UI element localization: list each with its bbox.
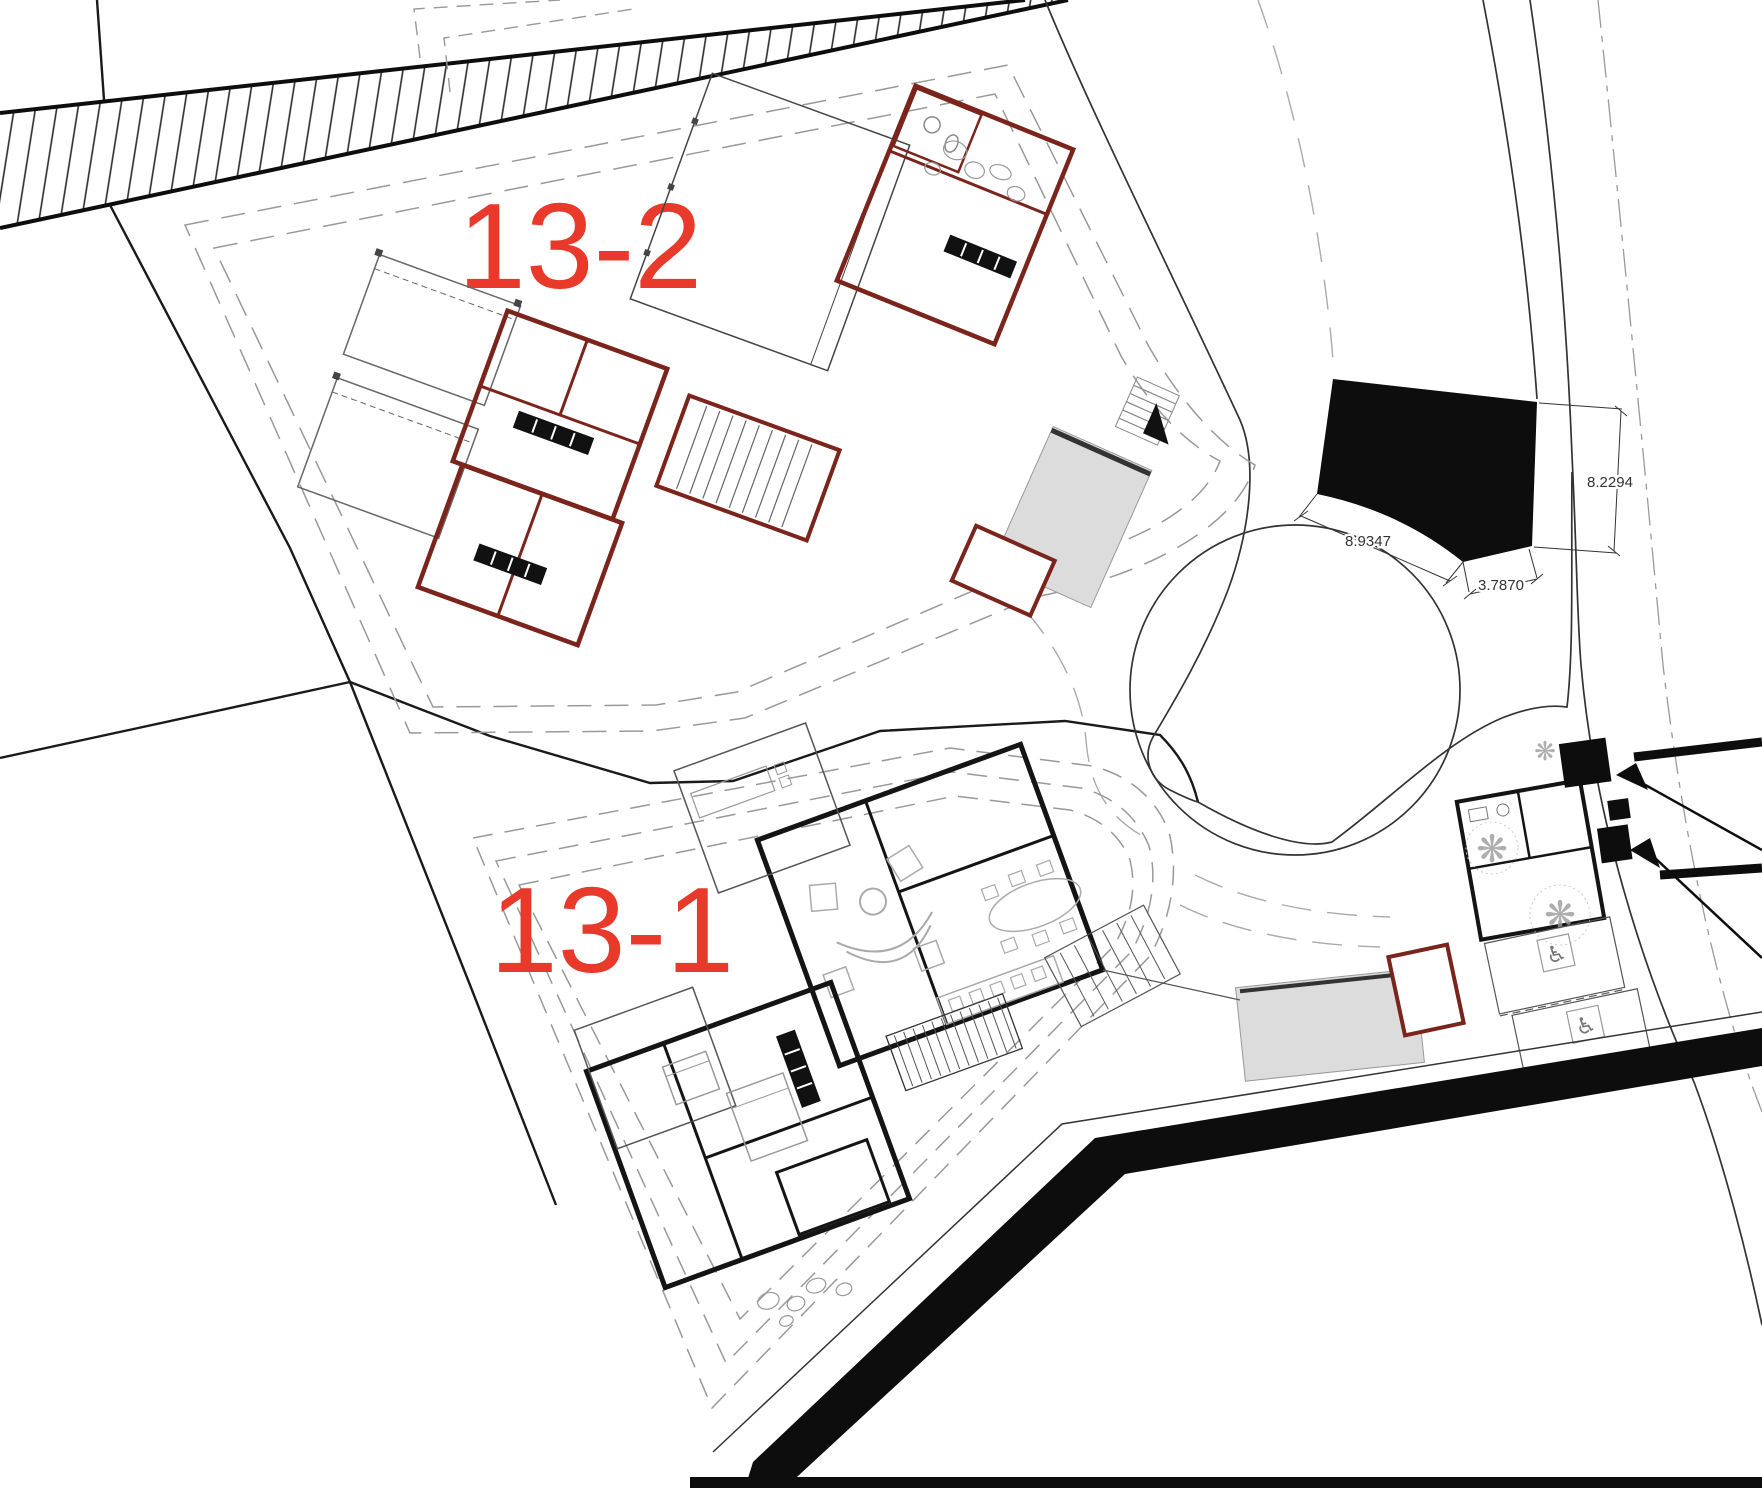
site-plan-drawing: 13-2: [0, 0, 1762, 1488]
lot-13-1-setback-rings: [473, 748, 1173, 1408]
arrowhead-2: [1630, 838, 1660, 868]
pool-stairs-13-2: [1115, 377, 1188, 449]
tree-icon: ❋: [1476, 827, 1508, 871]
lot-label-13-2: 13-2: [458, 178, 702, 314]
dim-text-8-2294: 8.2294: [1587, 474, 1633, 491]
entrance-marker-medium: [1597, 824, 1633, 863]
right-road-edge-a: [1483, 0, 1537, 399]
road-approach-dashed-edge: [1258, 0, 1334, 372]
main-block-13-1: [757, 744, 1102, 1065]
pool-13-2: [952, 414, 1152, 636]
entrance-arrows: [1616, 742, 1762, 958]
dim-text-8-9347: 8.9347: [1345, 533, 1391, 550]
pool-stairs-13-1: [1045, 905, 1181, 1026]
lot-label-13-1: 13-1: [490, 862, 734, 998]
boundary-above-band: [97, 0, 104, 100]
dashed-fragment-outer: [414, 0, 560, 58]
tree-icon: ❋: [1534, 737, 1556, 767]
road-marking-bar-2: [1660, 868, 1762, 875]
dimension-8-2294: 8.2294: [1534, 403, 1633, 556]
arrowhead-1: [1616, 763, 1648, 790]
lot-13-1-ring-outer: [473, 748, 1173, 1408]
deck-edge-13-1: [1103, 970, 1240, 1000]
bed-13-1-small: [663, 1051, 720, 1104]
terrace-13-2-b: [293, 371, 480, 538]
lot-13-2-ring-outer: [185, 65, 1255, 733]
landscape-rocks-13-2: [923, 134, 1034, 207]
bedroom-suite-13-2-b: [418, 465, 622, 645]
entrance-marker-small: [1607, 798, 1631, 821]
bedroom-wing-13-1: [587, 982, 910, 1287]
road-marking-bar-1: [1634, 742, 1762, 757]
arrow-line-1: [1640, 782, 1762, 850]
entrance-marker-large: [1559, 738, 1612, 788]
entrance-black-markers: [1559, 736, 1637, 867]
stair-hall-13-2: [656, 396, 839, 541]
lot-13-2-setback-rings: [185, 65, 1255, 733]
band-fill: [745, 1028, 1762, 1488]
dim-text-3-7870: 3.7870: [1478, 577, 1524, 594]
road-dash-curve-se1: [1180, 905, 1380, 947]
lot-13-2: 13-2: [185, 65, 1255, 733]
road-dash-curve-se2: [1195, 875, 1390, 917]
landscape-rocks-13-1: [755, 1265, 856, 1333]
bottom-edge-bar: [690, 1477, 1762, 1488]
boundary-left-line: [0, 682, 350, 758]
pool-13-2-marker: [1143, 403, 1182, 445]
right-road-centerline: [1598, 0, 1762, 1112]
accessible-parking-icon: ♿: [1573, 1011, 1599, 1041]
entrance-area: ❋ ❋ ❋ ♿ ♿: [1457, 736, 1762, 1089]
site-plan-page: 13-2: [0, 0, 1762, 1488]
right-road-edge-b: [1530, 0, 1762, 1325]
bedroom-suite-13-2-a: [453, 311, 667, 519]
dining-furniture-13-1: [977, 854, 1093, 958]
bottom-black-band: [713, 1012, 1762, 1488]
lot-divider-line: [350, 682, 1198, 802]
